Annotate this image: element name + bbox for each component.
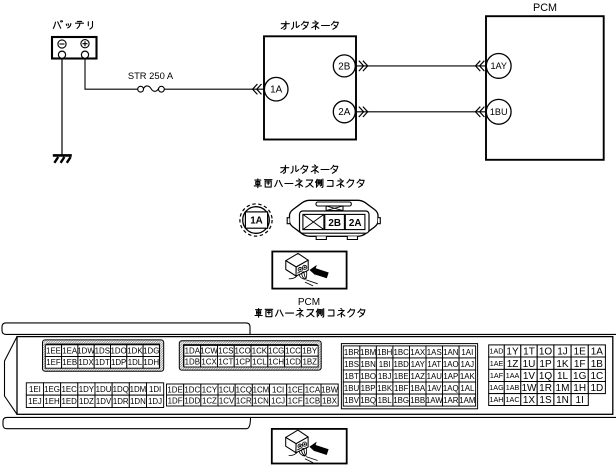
svg-text:1CC: 1CC xyxy=(285,347,301,356)
svg-text:1U: 1U xyxy=(523,359,536,370)
svg-text:1AW: 1AW xyxy=(426,396,443,405)
svg-text:1B: 1B xyxy=(591,359,604,370)
svg-text:1H: 1H xyxy=(573,383,586,394)
svg-text:1BU: 1BU xyxy=(344,384,360,393)
svg-text:1BD: 1BD xyxy=(394,360,410,369)
svg-text:1CD: 1CD xyxy=(285,357,301,366)
svg-text:1ED: 1ED xyxy=(62,397,78,406)
svg-text:1AH: 1AH xyxy=(490,395,504,404)
svg-text:1L: 1L xyxy=(557,371,569,382)
svg-text:1EF: 1EF xyxy=(46,358,61,367)
svg-text:1CF: 1CF xyxy=(288,396,303,405)
svg-text:STR 250 A: STR 250 A xyxy=(128,70,174,81)
svg-text:1BG: 1BG xyxy=(393,396,409,405)
svg-text:1DZ: 1DZ xyxy=(79,397,94,406)
svg-text:1CG: 1CG xyxy=(268,347,284,356)
svg-text:1BU: 1BU xyxy=(490,107,508,117)
svg-text:1Z: 1Z xyxy=(507,359,519,370)
svg-text:1CQ: 1CQ xyxy=(236,385,252,394)
svg-text:1J: 1J xyxy=(557,347,568,358)
svg-text:1CN: 1CN xyxy=(253,396,269,405)
svg-text:1BE: 1BE xyxy=(394,372,409,381)
svg-text:1O: 1O xyxy=(539,347,553,358)
svg-text:1AN: 1AN xyxy=(443,348,459,357)
svg-text:1BJ: 1BJ xyxy=(378,372,392,381)
svg-text:1BQ: 1BQ xyxy=(360,396,376,405)
svg-text:1DI: 1DI xyxy=(149,385,161,394)
svg-text:1BS: 1BS xyxy=(344,360,359,369)
svg-text:1DB: 1DB xyxy=(185,357,200,366)
svg-text:1DJ: 1DJ xyxy=(148,397,162,406)
svg-text:1DU: 1DU xyxy=(96,385,112,394)
svg-text:1BN: 1BN xyxy=(360,360,376,369)
svg-text:1DE: 1DE xyxy=(167,385,182,394)
svg-text:1CO: 1CO xyxy=(235,347,251,356)
svg-text:1DF: 1DF xyxy=(168,396,183,405)
svg-text:1CL: 1CL xyxy=(252,357,267,366)
svg-text:1BY: 1BY xyxy=(302,347,318,356)
svg-text:1AA: 1AA xyxy=(506,371,520,380)
svg-text:1CJ: 1CJ xyxy=(271,396,285,405)
svg-text:1DN: 1DN xyxy=(130,397,146,406)
svg-text:1CP: 1CP xyxy=(235,357,250,366)
svg-text:1AX: 1AX xyxy=(410,348,426,357)
svg-text:1AU: 1AU xyxy=(427,372,443,381)
svg-text:1DW: 1DW xyxy=(77,346,95,355)
svg-text:1BA: 1BA xyxy=(410,384,426,393)
svg-text:1N: 1N xyxy=(556,395,569,406)
svg-text:1BR: 1BR xyxy=(344,348,360,357)
svg-text:1AO: 1AO xyxy=(443,360,459,369)
svg-text:1AD: 1AD xyxy=(490,347,504,356)
svg-text:1P: 1P xyxy=(539,359,552,370)
svg-text:1AI: 1AI xyxy=(461,348,473,357)
svg-text:1A: 1A xyxy=(250,216,263,227)
svg-text:1DS: 1DS xyxy=(95,346,110,355)
svg-text:1DM: 1DM xyxy=(130,385,147,394)
svg-text:1AF: 1AF xyxy=(490,371,504,380)
svg-text:1A: 1A xyxy=(270,85,282,96)
svg-text:1DC: 1DC xyxy=(184,385,200,394)
svg-text:1BT: 1BT xyxy=(344,372,359,381)
svg-text:1DH: 1DH xyxy=(143,358,159,367)
svg-text:1CZ: 1CZ xyxy=(202,396,217,405)
svg-text:1AR: 1AR xyxy=(443,396,459,405)
svg-text:1EE: 1EE xyxy=(46,346,61,355)
svg-text:1EJ: 1EJ xyxy=(28,397,42,406)
svg-text:1DX: 1DX xyxy=(78,358,94,367)
svg-text:1DP: 1DP xyxy=(111,358,126,367)
svg-text:1CA: 1CA xyxy=(305,385,321,394)
svg-text:1DY: 1DY xyxy=(79,385,95,394)
svg-text:2A: 2A xyxy=(349,218,362,229)
svg-text:1AC: 1AC xyxy=(506,395,520,404)
svg-text:1CY: 1CY xyxy=(202,385,218,394)
svg-text:1V: 1V xyxy=(523,371,536,382)
svg-text:1EI: 1EI xyxy=(29,385,41,394)
svg-text:1T: 1T xyxy=(523,347,535,358)
svg-text:1M: 1M xyxy=(556,383,570,394)
svg-text:1DR: 1DR xyxy=(113,397,129,406)
svg-text:1BH: 1BH xyxy=(377,348,393,357)
svg-text:1C: 1C xyxy=(590,371,603,382)
svg-text:1D: 1D xyxy=(590,383,603,394)
svg-text:1E: 1E xyxy=(574,347,587,358)
svg-text:1DL: 1DL xyxy=(128,358,143,367)
svg-text:1Y: 1Y xyxy=(506,347,519,358)
svg-text:1AK: 1AK xyxy=(460,372,476,381)
svg-text:1EG: 1EG xyxy=(44,385,60,394)
svg-text:1AP: 1AP xyxy=(443,372,458,381)
svg-text:1AY: 1AY xyxy=(490,61,507,71)
svg-text:1BO: 1BO xyxy=(360,372,376,381)
svg-text:1BI: 1BI xyxy=(379,360,391,369)
svg-text:1AG: 1AG xyxy=(489,383,504,392)
svg-text:1BF: 1BF xyxy=(394,384,409,393)
svg-text:1CS: 1CS xyxy=(218,347,233,356)
svg-text:1BB: 1BB xyxy=(410,396,425,405)
svg-text:1G: 1G xyxy=(573,371,587,382)
svg-text:1EA: 1EA xyxy=(62,346,78,355)
svg-text:1DA: 1DA xyxy=(185,347,201,356)
svg-text:1CB: 1CB xyxy=(305,396,320,405)
svg-text:1BK: 1BK xyxy=(377,384,393,393)
svg-text:1AS: 1AS xyxy=(427,348,442,357)
svg-text:1Q: 1Q xyxy=(539,371,553,382)
svg-text:1DG: 1DG xyxy=(143,346,159,355)
svg-text:1BM: 1BM xyxy=(360,348,376,357)
svg-text:2B: 2B xyxy=(328,218,341,229)
svg-text:1CW: 1CW xyxy=(200,347,218,356)
svg-text:1DT: 1DT xyxy=(95,358,110,367)
svg-text:1EH: 1EH xyxy=(44,397,60,406)
svg-text:1EC: 1EC xyxy=(62,385,78,394)
svg-text:1CX: 1CX xyxy=(201,357,217,366)
svg-text:1BC: 1BC xyxy=(394,348,410,357)
svg-text:1DD: 1DD xyxy=(184,396,200,405)
svg-text:1W: 1W xyxy=(522,383,538,394)
svg-text:1CM: 1CM xyxy=(253,385,270,394)
svg-text:1R: 1R xyxy=(539,383,552,394)
svg-text:1AJ: 1AJ xyxy=(461,360,475,369)
svg-text:1AQ: 1AQ xyxy=(443,384,459,393)
svg-text:1AB: 1AB xyxy=(506,383,520,392)
svg-text:1K: 1K xyxy=(556,359,569,370)
svg-text:1BV: 1BV xyxy=(344,396,360,405)
svg-text:1BL: 1BL xyxy=(378,396,393,405)
svg-text:1CI: 1CI xyxy=(272,385,284,394)
svg-text:1AM: 1AM xyxy=(459,396,475,405)
svg-text:1CR: 1CR xyxy=(236,396,252,405)
svg-text:1DK: 1DK xyxy=(127,346,143,355)
svg-text:2B: 2B xyxy=(338,61,350,72)
svg-text:1S: 1S xyxy=(539,395,552,406)
svg-text:1AY: 1AY xyxy=(411,360,426,369)
svg-text:1BZ: 1BZ xyxy=(303,357,318,366)
svg-text:1F: 1F xyxy=(574,359,586,370)
svg-text:1BX: 1BX xyxy=(322,396,338,405)
svg-text:1AT: 1AT xyxy=(427,360,441,369)
svg-text:1BW: 1BW xyxy=(321,385,339,394)
svg-text:PCM: PCM xyxy=(533,2,557,14)
svg-text:1A: 1A xyxy=(591,347,604,358)
svg-text:2A: 2A xyxy=(338,107,350,118)
svg-text:1DQ: 1DQ xyxy=(113,385,129,394)
svg-text:1EB: 1EB xyxy=(62,358,77,367)
svg-text:PCM: PCM xyxy=(298,297,320,308)
svg-text:1CK: 1CK xyxy=(252,347,268,356)
svg-text:1CU: 1CU xyxy=(219,385,235,394)
svg-text:1DO: 1DO xyxy=(111,346,127,355)
svg-text:1AV: 1AV xyxy=(427,384,442,393)
svg-text:1CE: 1CE xyxy=(288,385,303,394)
svg-text:1DV: 1DV xyxy=(96,397,112,406)
svg-text:1AE: 1AE xyxy=(490,359,504,368)
svg-text:1CV: 1CV xyxy=(219,396,235,405)
svg-text:1BP: 1BP xyxy=(361,384,376,393)
svg-text:1CT: 1CT xyxy=(218,357,233,366)
svg-text:1AZ: 1AZ xyxy=(410,372,425,381)
svg-text:1AL: 1AL xyxy=(460,384,475,393)
svg-text:1X: 1X xyxy=(523,395,536,406)
svg-text:1I: 1I xyxy=(576,395,584,406)
svg-text:1CH: 1CH xyxy=(268,357,284,366)
